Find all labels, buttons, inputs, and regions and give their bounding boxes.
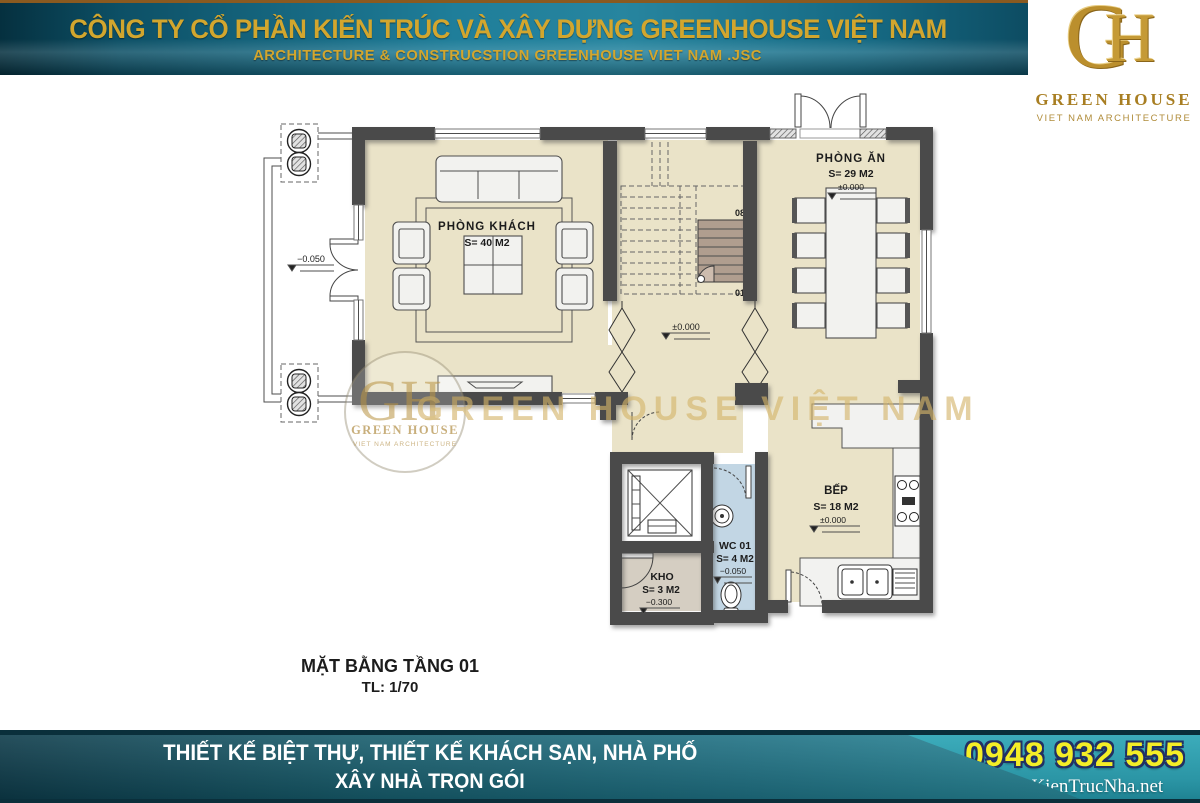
watermark-big-text: GREEN HOUSE VIỆT NAM — [416, 390, 979, 428]
kho-name: KHO — [650, 571, 673, 583]
wc-area: S= 4 M2 — [716, 554, 754, 565]
porch-columns — [264, 124, 352, 422]
footer-banner: THIẾT KẾ BIỆT THỰ, THIẾT KẾ KHÁCH SẠN, N… — [0, 730, 1200, 803]
column-icon — [288, 130, 311, 416]
kitchen-area: S= 18 M2 — [813, 501, 858, 513]
logo-monogram-icon: G H — [1039, 2, 1189, 90]
plan-scale: TL: 1/70 — [362, 679, 419, 696]
dining-room-level: ±0.000 — [838, 182, 864, 192]
kitchen-name: BẾP — [824, 484, 848, 497]
kitchen-level: ±0.000 — [820, 515, 846, 525]
floor-plan-drawing: 08 01 — [0, 0, 1200, 803]
hall-level: ±0.000 — [672, 322, 699, 332]
logo-tagline: VIET NAM ARCHITECTURE — [1037, 113, 1192, 124]
stove-icon — [895, 476, 920, 526]
company-logo: G H GREEN HOUSE VIET NAM ARCHITECTURE — [1028, 0, 1200, 143]
footer-line2: XÂY NHÀ TRỌN GÓI — [335, 770, 525, 794]
living-room-area: S= 40 M2 — [464, 237, 509, 249]
watermark-tagline: VIET NAM ARCHITECTURE — [353, 441, 457, 448]
logo-letter-h: H — [1105, 4, 1156, 74]
drawing-title-block: MẶT BẰNG TẦNG 01 TL: 1/70 — [301, 655, 479, 696]
website-url: www.KienTrucNha.net — [987, 776, 1163, 798]
sink-icon — [838, 565, 917, 599]
footer-services: THIẾT KẾ BIỆT THỰ, THIẾT KẾ KHÁCH SẠN, N… — [0, 735, 860, 799]
porch-level: −0.050 — [297, 254, 325, 264]
footer-contact: 0948 932 555 www.KienTrucNha.net — [880, 735, 1200, 799]
plan-title: MẶT BẰNG TẦNG 01 — [301, 655, 479, 676]
phone-number: 0948 932 555 — [965, 736, 1185, 775]
wc-name: WC 01 — [719, 540, 751, 552]
company-name: CÔNG TY CỔ PHẦN KIẾN TRÚC VÀ XÂY DỰNG GR… — [69, 14, 946, 45]
wc-level: −0.050 — [720, 566, 747, 576]
sofa — [436, 156, 562, 202]
dining-room-name: PHÒNG ĂN — [816, 152, 886, 165]
living-room-name: PHÒNG KHÁCH — [438, 220, 536, 233]
footer-line1: THIẾT KẾ BIỆT THỰ, THIẾT KẾ KHÁCH SẠN, N… — [163, 740, 697, 766]
logo-name: GREEN HOUSE — [1035, 90, 1192, 110]
kho-area: S= 3 M2 — [642, 585, 680, 596]
header-banner: CÔNG TY CỔ PHẦN KIẾN TRÚC VÀ XÂY DỰNG GR… — [0, 0, 1200, 75]
kho-level: −0.300 — [646, 597, 673, 607]
page: 08 01 — [0, 0, 1200, 803]
dining-room-area: S= 29 M2 — [828, 168, 873, 180]
company-name-en: ARCHITECTURE & CONSTRUCSTION GREENHOUSE … — [253, 47, 762, 64]
elevator-shaft — [628, 470, 692, 536]
